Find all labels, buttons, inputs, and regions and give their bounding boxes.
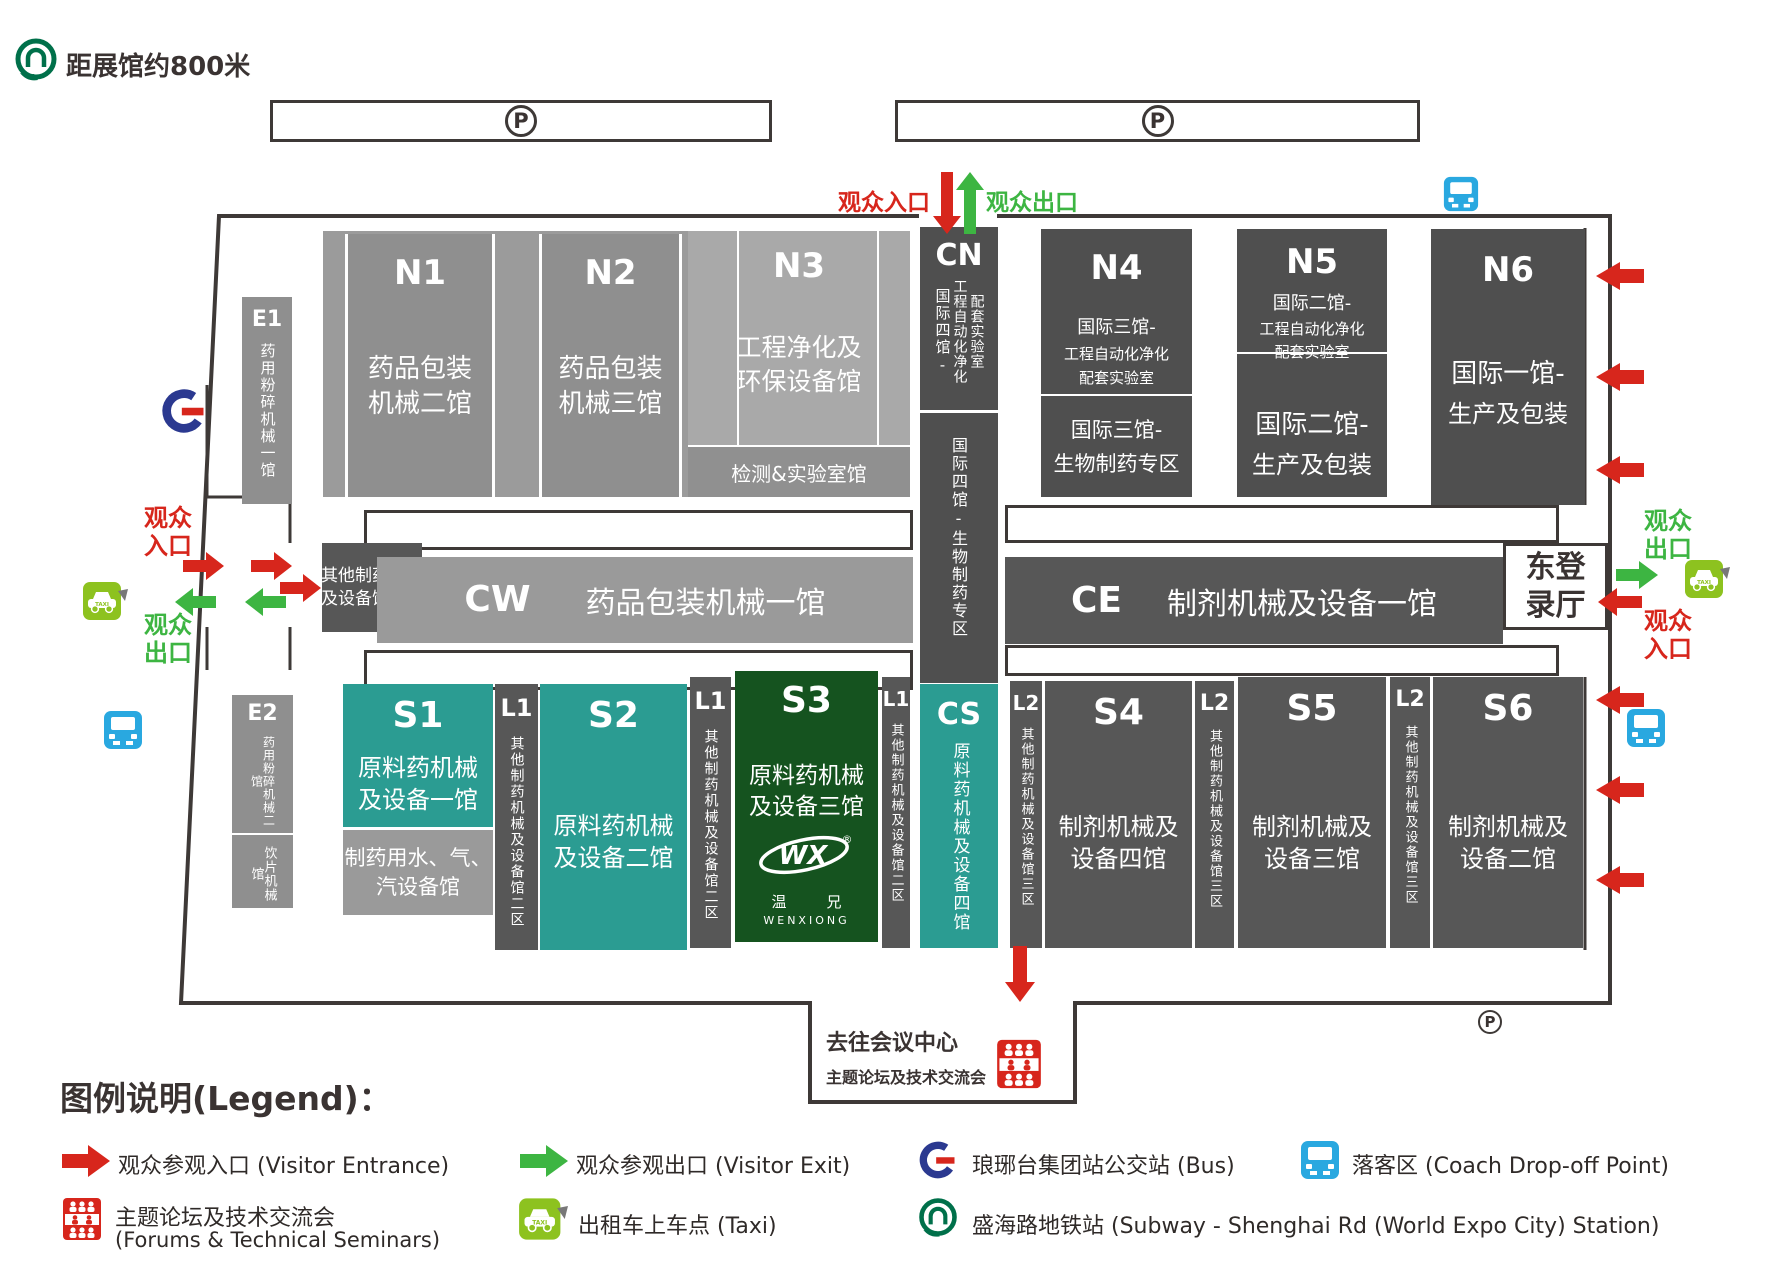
hall-l1-code: L1	[695, 689, 727, 713]
svg-text:TAXI: TAXI	[95, 602, 109, 608]
parking-strip-right: P	[895, 100, 1420, 142]
legend-exit-label: 观众参观出口 (Visitor Exit)	[576, 1148, 850, 1180]
forums-icon	[996, 1038, 1042, 1090]
conference-title: 去往会议中心	[826, 1025, 958, 1057]
hall-n5-lower-2: 生产及包装	[1252, 445, 1372, 480]
hall-e1-name: 药用粉碎机械一馆	[260, 343, 275, 479]
hall-l1-c: L1 其他制药机械及设备馆二区	[882, 677, 910, 948]
hall-n3-name: 工程净化及环保设备馆	[732, 331, 867, 399]
hall-s5-name: 制剂机械及设备三馆	[1247, 811, 1377, 876]
hall-s3: S3 原料药机械及设备三馆 WX ® 温兄 WENXIONG	[735, 671, 878, 942]
hall-n3-code: N3	[773, 249, 825, 283]
coach-dropoff-icon	[1443, 176, 1479, 212]
hall-s3-code: S3	[781, 683, 832, 719]
legend-subway-label: 盛海路地铁站 (Subway - Shenghai Rd (World Expo…	[972, 1208, 1659, 1240]
hall-s4-name: 制剂机械及设备四馆	[1054, 811, 1184, 876]
hall-n6: N6 国际一馆- 生产及包装	[1431, 229, 1585, 505]
wx-logo-en: WENXIONG	[763, 914, 849, 927]
hall-l1-name: 其他制药机械及设备馆二区	[704, 729, 718, 921]
top-visitor-exit-label: 观众出口	[986, 190, 1078, 216]
hall-l2-c: L2 其他制药机械及设备馆三区	[1390, 677, 1430, 948]
hall-ce: CE 制剂机械及设备一馆	[1005, 557, 1503, 644]
hall-cs-code: CS	[937, 700, 981, 730]
parking-icon: P	[1142, 105, 1174, 137]
wx-logo-cn: 温兄	[732, 891, 882, 912]
hall-n5-lower-1: 国际二馆-	[1255, 404, 1368, 441]
hall-n6-code: N6	[1482, 253, 1534, 287]
hall-cn-lower: 国际四馆-生物制药专区	[950, 437, 966, 638]
legend-coach-label: 落客区 (Coach Drop-off Point)	[1352, 1148, 1669, 1180]
svg-text:TAXI: TAXI	[1697, 580, 1711, 586]
hall-s3-name: 原料药机械及设备三馆	[748, 761, 866, 823]
hall-n4-upper-2: 工程自动化净化	[1064, 343, 1169, 364]
hall-e2-name: 药用粉碎机械二馆	[251, 731, 275, 832]
legend-taxi-label: 出租车上车点 (Taxi)	[578, 1208, 777, 1240]
hall-cn-code: CN	[935, 241, 982, 271]
forums-icon	[62, 1196, 102, 1242]
conference-subtitle: 主题论坛及技术交流会	[826, 1064, 986, 1088]
hall-n5-upper-2: 工程自动化净化	[1259, 318, 1364, 339]
hall-l2-code: L2	[1395, 689, 1424, 711]
hall-n1-name: 药品包装机械二馆	[366, 352, 474, 422]
wx-logo-reg: ®	[842, 833, 853, 846]
hall-n2-name: 药品包装机械三馆	[557, 352, 665, 422]
right-visitor-entrance-label: 观众入口	[1640, 608, 1696, 663]
legend-entrance-label: 观众参观入口 (Visitor Entrance)	[118, 1148, 449, 1180]
hall-n3: N3 工程净化及环保设备馆 检测&实验室馆	[688, 231, 910, 497]
hall-n1-code: N1	[394, 256, 446, 290]
top-visitor-entrance-label: 观众入口	[838, 190, 930, 216]
hall-e1-code: E1	[252, 309, 282, 331]
venue-map: 距展馆约800米 P P 观众入口 观众出口 N1 药品包装机械二馆 N2 药品…	[0, 0, 1770, 1276]
corridor-bar	[1005, 505, 1559, 543]
hall-l2-name: 其他制药机械及设备馆三区	[1404, 725, 1417, 905]
coach-dropoff-icon	[103, 710, 143, 750]
hall-l1-name: 其他制药机械及设备馆二区	[510, 736, 524, 928]
east-registration-hall: 东登录厅	[1503, 543, 1608, 630]
hall-s4-code: S4	[1093, 695, 1144, 731]
corridor-bar	[1005, 645, 1559, 676]
hall-n4-upper-1: 国际三馆-	[1077, 313, 1156, 339]
hall-s2-name: 原料药机械及设备二馆	[552, 810, 676, 875]
hall-cw-code: CW	[464, 582, 530, 618]
coach-dropoff-icon	[1300, 1140, 1340, 1180]
right-visitor-exit-label: 观众出口	[1640, 508, 1696, 563]
taxi-icon: TAXI	[82, 578, 128, 624]
hall-e2-code: E2	[247, 703, 277, 725]
hall-n1: N1 药品包装机械二馆	[345, 234, 495, 497]
hall-n3-sub: 检测&实验室馆	[688, 445, 910, 497]
hall-s2-code: S2	[588, 698, 639, 734]
hall-s5-code: S5	[1287, 691, 1338, 727]
divider	[920, 410, 998, 413]
hall-n5-code: N5	[1286, 245, 1338, 279]
hall-water-name: 制药用水、气、汽设备馆	[343, 844, 493, 901]
left-visitor-exit-label: 观众出口	[140, 612, 196, 667]
hall-l1-a: L1 其他制药机械及设备馆二区	[495, 684, 538, 950]
hall-s1: S1 原料药机械及设备一馆	[343, 684, 493, 827]
hall-cn-line2: 工程自动化净化	[953, 279, 967, 384]
hall-n6-line2: 生产及包装	[1448, 394, 1568, 429]
hall-n4-lower-1: 国际三馆-	[1071, 414, 1163, 444]
parking-icon: P	[505, 105, 537, 137]
hall-cn-line1: 国际四馆-	[935, 279, 950, 384]
hall-n4-lower-2: 生物制药专区	[1054, 448, 1180, 478]
corridor-bar	[364, 510, 913, 550]
hall-s4: S4 制剂机械及设备四馆	[1045, 681, 1192, 948]
subway-logo-icon	[916, 1196, 960, 1240]
hall-n2: N2 药品包装机械三馆	[539, 234, 682, 497]
svg-text:TAXI: TAXI	[532, 1219, 547, 1226]
bus-station-logo-icon	[158, 385, 210, 437]
hall-n2-code: N2	[584, 256, 636, 290]
hall-n5-upper-1: 国际二馆-	[1273, 289, 1352, 315]
hall-l2-name: 其他制药机械及设备馆三区	[1020, 727, 1033, 907]
hall-l1-b: L1 其他制药机械及设备馆二区	[690, 677, 731, 948]
hall-s6-name: 制剂机械及设备二馆	[1443, 811, 1573, 876]
hall-l1-name: 其他制药机械及设备馆二区	[890, 723, 903, 903]
hall-s6-code: S6	[1483, 691, 1534, 727]
taxi-icon: TAXI	[1684, 556, 1730, 602]
hall-l2-a: L2 其他制药机械及设备馆三区	[1010, 681, 1042, 948]
hall-s6: S6 制剂机械及设备二馆	[1433, 677, 1583, 948]
parking-icon: P	[1478, 1010, 1502, 1034]
hall-l2-code: L2	[1200, 693, 1229, 715]
legend-forum-label-line2: (Forums & Technical Seminars)	[115, 1228, 440, 1252]
coach-dropoff-icon	[1626, 708, 1666, 748]
subway-distance-note: 距展馆约800米	[66, 46, 250, 83]
hall-l2-name: 其他制药机械及设备馆三区	[1208, 729, 1221, 909]
hall-ce-name: 制剂机械及设备一馆	[1167, 579, 1437, 623]
hall-e2: E2 药用粉碎机械二馆 饮片机械馆	[232, 695, 293, 908]
wx-logo-text: WX	[779, 841, 830, 871]
divider	[1041, 394, 1192, 396]
hall-water: 制药用水、气、汽设备馆	[343, 830, 493, 915]
hall-s5: S5 制剂机械及设备三馆	[1238, 677, 1386, 948]
hall-n4: N4 国际三馆- 工程自动化净化 配套实验室 国际三馆- 生物制药专区	[1041, 229, 1192, 497]
hall-s2: S2 原料药机械及设备二馆	[540, 684, 687, 950]
left-visitor-entrance-label: 观众入口	[140, 505, 196, 560]
hall-l2-code: L2	[1013, 693, 1040, 713]
hall-n4-code: N4	[1090, 251, 1142, 285]
hall-l2-b: L2 其他制药机械及设备馆三区	[1195, 681, 1234, 948]
parking-strip-left: P	[270, 100, 772, 142]
divider	[232, 833, 293, 835]
hall-e1: E1 药用粉碎机械一馆	[242, 297, 292, 504]
hall-cs-name: 原料药机械及设备四馆	[951, 742, 968, 932]
east-registration-hall-label: 东登录厅	[1524, 549, 1588, 624]
hall-cw: CW 药品包装机械一馆	[377, 557, 913, 643]
hall-e2-name2: 饮片机械馆	[250, 840, 276, 908]
taxi-icon: TAXI	[518, 1197, 568, 1241]
legend-bus-label: 琅琊台集团站公交站 (Bus)	[972, 1148, 1235, 1180]
hall-n4-upper-3: 配套实验室	[1079, 367, 1154, 388]
hall-l1-code: L1	[501, 696, 533, 720]
bus-station-logo-icon	[916, 1138, 960, 1182]
hall-l1-code: L1	[883, 689, 910, 709]
hall-n5: N5 国际二馆- 工程自动化净化 配套实验室 国际二馆- 生产及包装	[1237, 229, 1387, 497]
hall-cs: CS 原料药机械及设备四馆	[920, 684, 998, 948]
hall-s1-code: S1	[393, 698, 444, 734]
subway-logo-icon	[12, 36, 60, 84]
hall-ce-code: CE	[1071, 583, 1122, 619]
hall-n6-line1: 国际一馆-	[1451, 353, 1564, 390]
wenxiong-logo-icon: WX ®	[757, 829, 857, 891]
hall-cw-name: 药品包装机械一馆	[586, 578, 826, 622]
divider	[1237, 352, 1387, 354]
hall-cn-line3: 配套实验室	[970, 279, 984, 384]
hall-s1-name: 原料药机械及设备一馆	[356, 752, 480, 817]
hall-cn: CN 国际四馆- 工程自动化净化 配套实验室 国际四馆-生物制药专区	[920, 227, 998, 683]
legend-title: 图例说明(Legend)：	[60, 1072, 392, 1120]
